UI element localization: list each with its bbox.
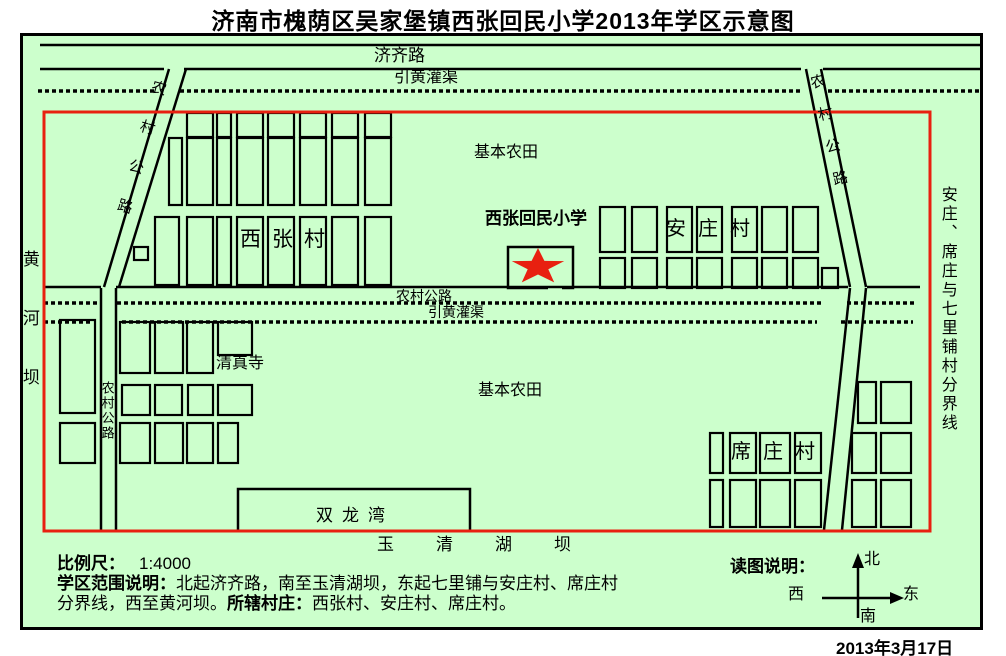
compass-east-label: 东 xyxy=(903,587,919,604)
villages-label: 所辖村庄： xyxy=(227,594,312,613)
map-date: 2013年3月17日 xyxy=(836,634,953,656)
label-rural-road-left-vertical: 农村公路 xyxy=(100,381,114,441)
scale-label: 比例尺： xyxy=(57,554,125,573)
page-title: 济南市槐荫区吴家堡镇西张回民小学2013年学区示意图 xyxy=(0,2,1006,36)
label-canal-mid: 引黄灌渠 xyxy=(428,305,484,320)
scope-text-1: 北起济齐路，南至玉清湖坝，东起七里铺与安庄村、席庄村 xyxy=(176,574,618,593)
label-xizhang-village: 西张村 xyxy=(240,229,336,251)
map-notes: 比例尺：1:4000 学区范围说明：北起济齐路，南至玉清湖坝，东起七里铺与安庄村… xyxy=(57,554,618,614)
scale-value: 1:4000 xyxy=(139,554,191,573)
scope-text-2: 分界线，西至黄河坝。 xyxy=(57,594,227,613)
label-xizhuang-village: 席庄村 xyxy=(731,442,827,463)
schematic-map-page: 济南市槐荫区吴家堡镇西张回民小学2013年学区示意图 济齐路 引黄灌渠 基本农田… xyxy=(0,0,1006,656)
compass-south-label: 南 xyxy=(860,609,876,626)
label-school: 西张回民小学 xyxy=(485,210,587,228)
scope-line-1: 学区范围说明：北起济齐路，南至玉清湖坝，东起七里铺与安庄村、席庄村 xyxy=(57,574,618,594)
label-shuanglongwan: 双龙湾 xyxy=(316,507,394,525)
label-yuqinghu-dam: 玉清湖坝 xyxy=(377,536,613,554)
label-farmland-bottom: 基本农田 xyxy=(478,383,542,400)
legend-title: 读图说明： xyxy=(730,558,815,576)
compass-west-label: 西 xyxy=(788,587,804,604)
compass-north-label: 北 xyxy=(864,552,880,569)
label-mosque: 清真寺 xyxy=(216,356,264,373)
label-anzhuang-village: 安庄村 xyxy=(666,219,762,240)
label-rural-road-mid: 农村公路 xyxy=(396,289,452,304)
scope-label: 学区范围说明： xyxy=(57,574,176,593)
villages-text: 西张村、安庄村、席庄村。 xyxy=(312,594,516,613)
label-farmland-top: 基本农田 xyxy=(474,145,538,162)
scope-line-2: 分界线，西至黄河坝。所辖村庄：西张村、安庄村、席庄村。 xyxy=(57,594,618,614)
scale-line: 比例尺：1:4000 xyxy=(57,554,618,574)
label-canal-top: 引黄灌渠 xyxy=(394,70,458,87)
label-huanghe-dam: 黄河坝 xyxy=(20,250,38,427)
label-jiqi-road: 济齐路 xyxy=(374,47,425,65)
label-east-boundary-note: 安庄、席庄与七里铺村分界线 xyxy=(938,186,955,433)
